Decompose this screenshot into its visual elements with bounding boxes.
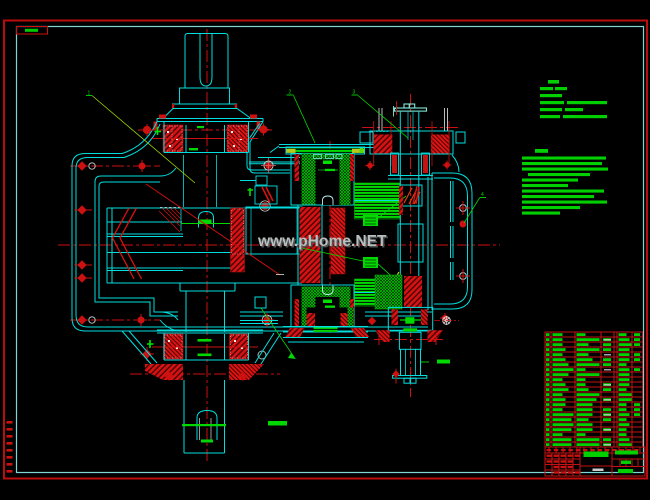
svg-text:www.pHome.NET: www.pHome.NET	[257, 233, 387, 250]
